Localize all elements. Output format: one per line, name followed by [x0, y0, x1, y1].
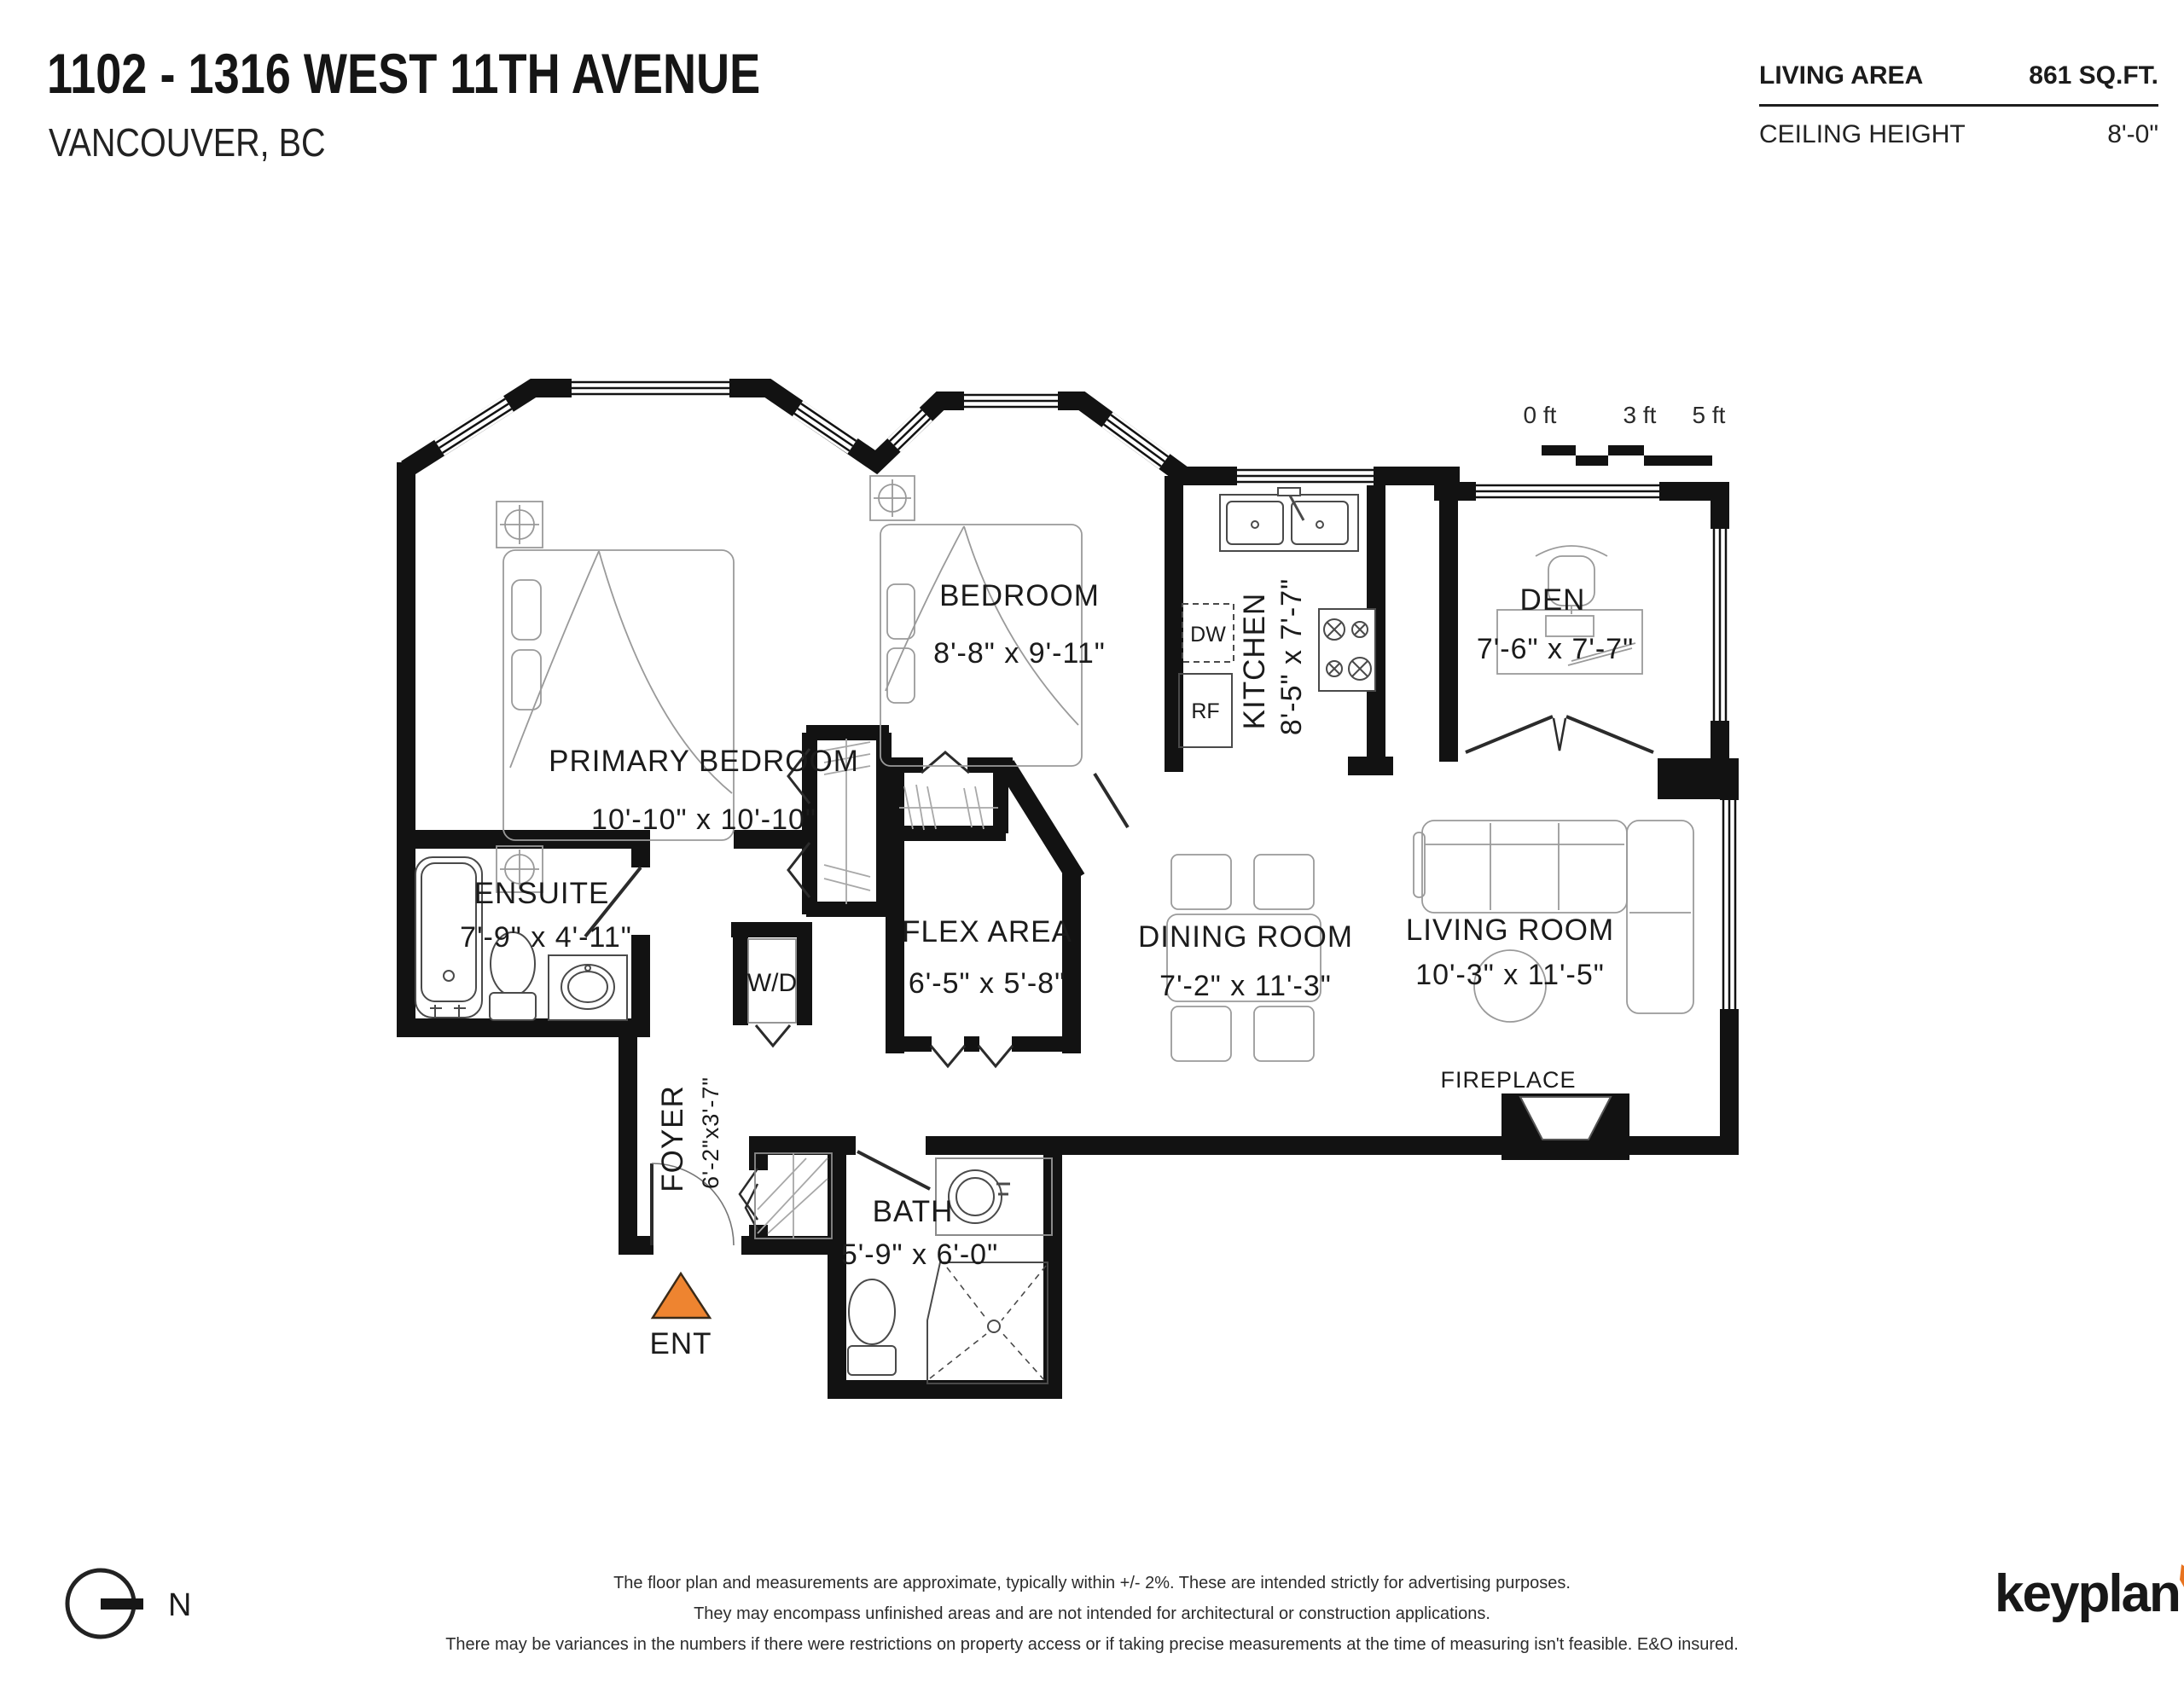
fox-icon: [2178, 1564, 2184, 1600]
living-area-row: LIVING AREA 861 SQ.FT.: [1759, 61, 2158, 107]
info-panel: LIVING AREA 861 SQ.FT. CEILING HEIGHT 8'…: [1759, 61, 2158, 149]
den-door-notch: [1554, 718, 1565, 751]
label-wd: W/D: [747, 969, 797, 997]
entry-marker: ENT: [650, 1273, 712, 1360]
label-bath: BATH: [873, 1195, 954, 1228]
dims-foyer: 6'-2"x3'-7": [698, 1076, 723, 1189]
disclaimer-line-3: There may be variances in the numbers if…: [0, 1629, 2184, 1660]
dims-bath: 5'-9" x 6'-0": [841, 1238, 998, 1271]
scale-tick-3: 3 ft: [1623, 402, 1657, 428]
label-den: DEN: [1520, 583, 1586, 617]
dining-set-icon: [1167, 855, 1321, 1061]
dims-ensuite: 7'-9" x 4'-11": [460, 921, 632, 954]
brand-logo-text: keyplan: [1995, 1568, 2180, 1621]
nightstand-lamp-icon: [497, 502, 543, 548]
dims-den: 7'-6" x 7'-7": [1477, 633, 1634, 665]
mirror-door-hatch: [758, 1153, 828, 1238]
label-rf: RF: [1191, 699, 1219, 723]
den-window-icon: [1476, 482, 1659, 501]
wd-door: [756, 1025, 790, 1046]
chair-icon: [1254, 1006, 1314, 1061]
chair-icon: [1171, 855, 1231, 909]
bedroom-closet-door: [921, 752, 969, 773]
corner-block: [1434, 467, 1460, 501]
entry-arrow-icon: [653, 1273, 710, 1318]
ceiling-height-value: 8'-0": [2107, 120, 2158, 149]
label-dining-room: DINING ROOM: [1138, 920, 1353, 954]
dims-flex-area: 6'-5" x 5'-8": [909, 967, 1066, 1000]
living-window-icon: [1720, 800, 1739, 1009]
scale-tick-0: 0 ft: [1524, 402, 1557, 428]
entry-label: ENT: [650, 1327, 712, 1360]
label-bedroom: BEDROOM: [939, 579, 1100, 612]
bay-window-icon: [434, 396, 514, 455]
fireplace-icon: [1501, 1093, 1629, 1160]
bedroom-door-leaf: [1095, 774, 1128, 827]
bath-fixtures: [848, 1158, 1052, 1383]
scale-tick-5: 5 ft: [1693, 402, 1726, 428]
disclaimer-line-1: The floor plan and measurements are appr…: [0, 1568, 2184, 1598]
page-subtitle: VANCOUVER, BC: [49, 119, 326, 165]
label-dw: DW: [1190, 623, 1226, 647]
toilet-icon: [849, 1279, 895, 1344]
bed-icon: [870, 476, 1082, 766]
bath-door-leaf: [857, 1151, 930, 1189]
label-ensuite: ENSUITE: [474, 877, 610, 910]
corner-block: [1658, 758, 1739, 799]
bay-window-icon: [793, 401, 858, 454]
dims-dining-room: 7'-2" x 11'-3": [1159, 970, 1332, 1002]
shower-icon: [927, 1262, 1048, 1383]
chair-icon: [1171, 1006, 1231, 1061]
label-fireplace: FIREPLACE: [1440, 1067, 1576, 1093]
label-primary-bedroom: PRIMARY BEDROOM: [549, 745, 859, 778]
nightstand-lamp-icon: [870, 476, 915, 520]
dims-primary-bedroom: 10'-10" x 10'-10": [591, 803, 816, 836]
label-kitchen: KITCHEN: [1238, 593, 1271, 730]
bay-window-icon: [1102, 412, 1170, 469]
scale-bar: 0 ft 3 ft 5 ft: [1524, 402, 1726, 466]
floor-plan: ENT 0 ft 3 ft 5 ft PRIMARY BEDROOM 10'-1…: [367, 367, 1783, 1441]
bay-window-icon: [964, 392, 1058, 410]
ceiling-height-label: CEILING HEIGHT: [1759, 120, 1966, 149]
den-side-window-icon: [1711, 529, 1729, 721]
page-title: 1102 - 1316 WEST 11TH AVENUE: [47, 41, 760, 106]
chair-icon: [1254, 855, 1314, 909]
disclaimer-line-2: They may encompass unfinished areas and …: [0, 1598, 2184, 1629]
bay-window-icon: [887, 408, 932, 452]
ceiling-height-row: CEILING HEIGHT 8'-0": [1759, 107, 2158, 149]
label-living-room: LIVING ROOM: [1406, 914, 1614, 947]
kitchen-window-icon: [1237, 467, 1374, 485]
label-foyer: FOYER: [656, 1085, 689, 1192]
bay-window-icon: [572, 379, 729, 397]
living-area-label: LIVING AREA: [1759, 61, 1923, 90]
dims-bedroom: 8'-8" x 9'-11": [933, 637, 1106, 670]
dims-kitchen: 8'-5" x 7'-7": [1275, 578, 1308, 735]
label-flex-area: FLEX AREA: [902, 915, 1072, 948]
brand-logo: keyplan: [1995, 1568, 2184, 1621]
disclaimer: The floor plan and measurements are appr…: [0, 1568, 2184, 1660]
dims-living-room: 10'-3" x 11'-5": [1415, 959, 1605, 991]
living-area-value: 861 SQ.FT.: [2029, 61, 2158, 90]
